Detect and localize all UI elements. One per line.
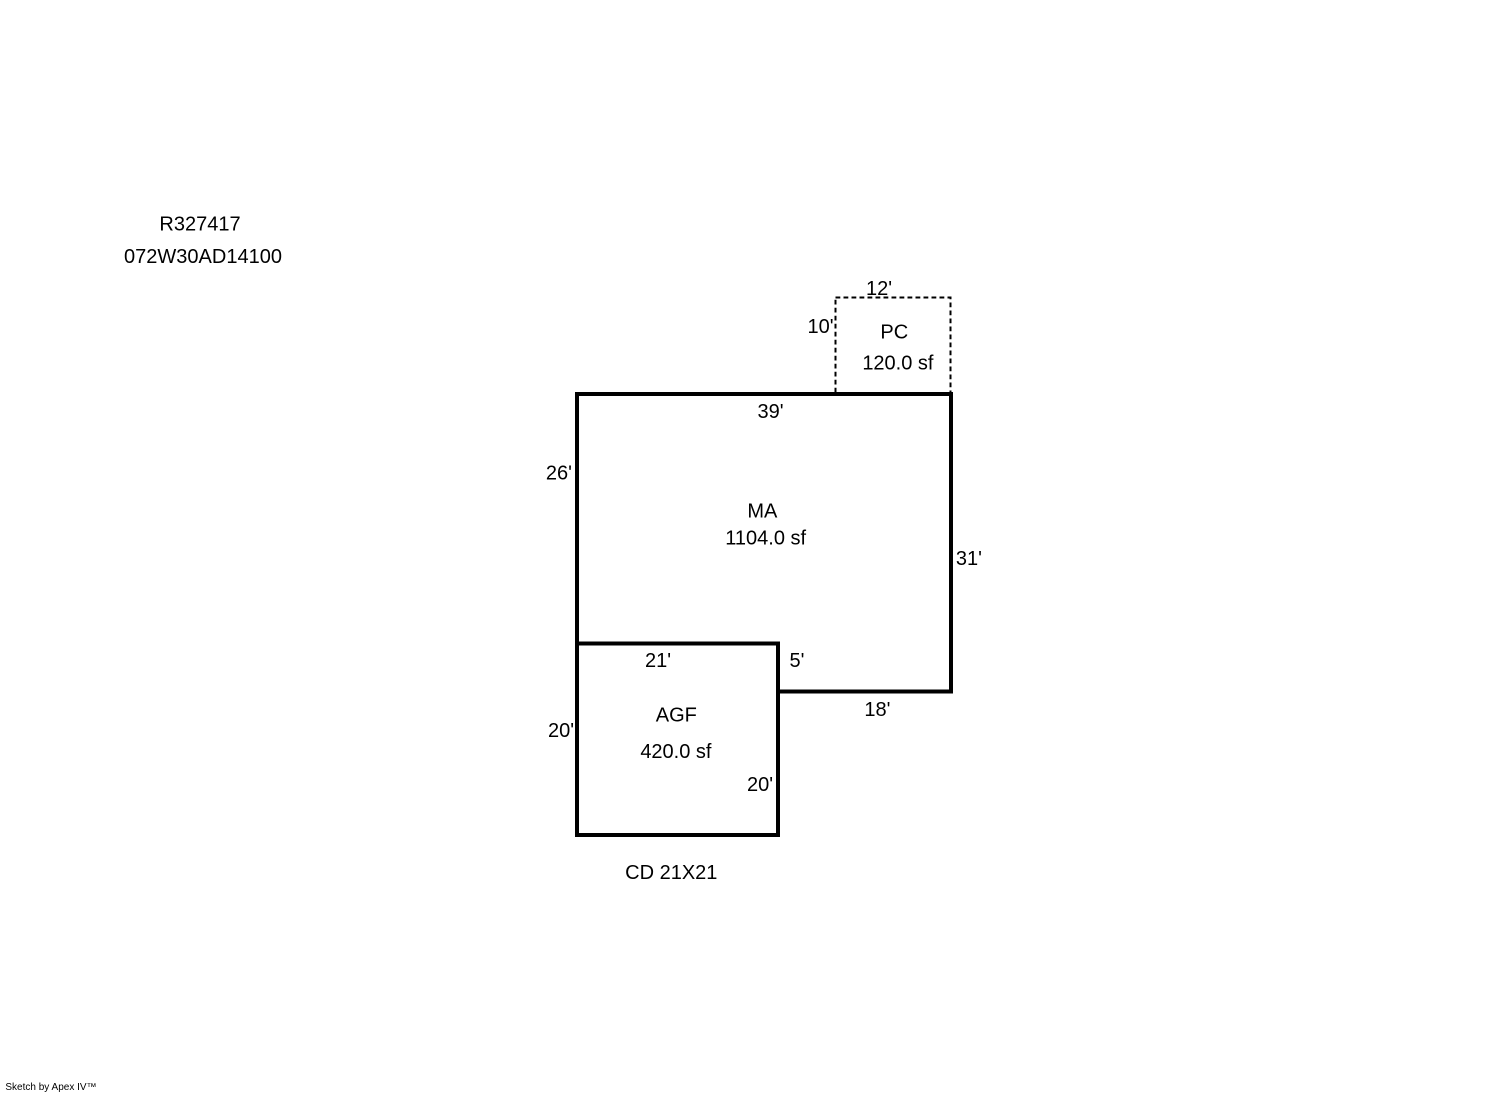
svg-text:12': 12' [866,278,892,300]
svg-text:39': 39' [757,401,783,423]
svg-text:21': 21' [645,650,671,672]
svg-text:5': 5' [790,650,805,672]
svg-text:120.0 sf: 120.0 sf [862,353,934,375]
svg-text:20': 20' [747,774,773,796]
svg-text:072W30AD14100: 072W30AD14100 [124,246,282,268]
svg-text:R327417: R327417 [159,214,240,236]
svg-text:CD 21X21: CD 21X21 [625,862,717,884]
svg-text:1104.0 sf: 1104.0 sf [725,528,806,550]
svg-text:PC: PC [880,321,908,343]
svg-text:18': 18' [864,699,890,721]
svg-text:AGF: AGF [656,705,697,727]
svg-text:31': 31' [956,548,982,570]
svg-text:MA: MA [747,501,778,523]
svg-text:20': 20' [548,720,574,742]
svg-text:Sketch by Apex IV™: Sketch by Apex IV™ [5,1082,96,1093]
svg-text:420.0 sf: 420.0 sf [640,741,712,763]
svg-text:10': 10' [808,316,834,338]
svg-text:26': 26' [546,463,572,485]
